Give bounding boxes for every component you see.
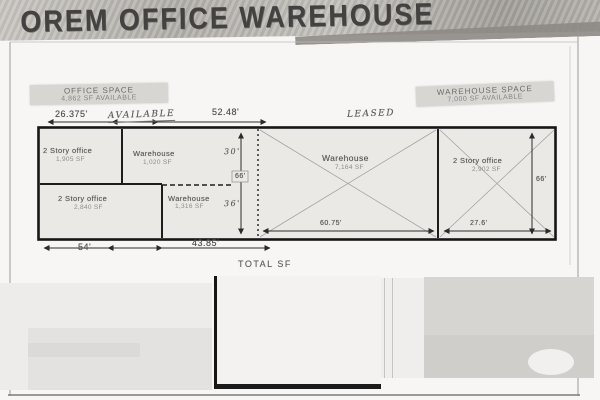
scan-artifact-overlay-2 xyxy=(28,343,140,357)
erased-logo-oval xyxy=(528,349,574,375)
dim-bottom-seg1: 54' xyxy=(78,242,91,252)
room-office-nw-area: 1,905 SF xyxy=(56,156,85,163)
dim-left-total: 66' xyxy=(235,173,246,180)
dim-top-seg1: 26.375' xyxy=(55,109,88,119)
room-warehouse-main-area: 7,164 SF xyxy=(335,164,364,171)
total-sf-label: TOTAL SF xyxy=(238,259,292,269)
room-office-sw-name: 2 Story office xyxy=(58,194,107,203)
interior-walls xyxy=(40,129,438,238)
room-warehouse-n-area: 1,020 SF xyxy=(143,159,172,166)
room-warehouse-s-name: Warehouse xyxy=(168,194,210,203)
dim-left-upper: 30' xyxy=(224,147,241,157)
room-office-sw-area: 2,840 SF xyxy=(74,204,103,211)
dim-main-width: 60.75' xyxy=(320,220,342,227)
dim-right-height: 66' xyxy=(536,176,547,183)
handwritten-leased: LEASED xyxy=(347,108,395,120)
room-warehouse-main-name: Warehouse xyxy=(322,153,369,163)
dim-top-seg2: 52.48' xyxy=(212,107,239,117)
scan-artifact-block-left xyxy=(0,283,212,390)
office-space-subtitle: 4,862 SF AVAILABLE xyxy=(34,94,164,103)
handwritten-available: AVAILABLE xyxy=(108,109,176,123)
scan-artifact-overlay-1 xyxy=(28,328,212,390)
scanned-flyer-page: OREM OFFICE WAREHOUSE xyxy=(0,0,600,400)
scan-artifact-box-middle xyxy=(214,276,381,389)
office-space-label: OFFICE SPACE 4,862 SF AVAILABLE xyxy=(30,83,168,105)
room-warehouse-s-area: 1,316 SF xyxy=(175,203,204,210)
room-office-e-name: 2 Story office xyxy=(453,156,502,165)
scan-line-2 xyxy=(392,278,393,378)
warehouse-space-label: WAREHOUSE SPACE 7,000 SF AVAILABLE xyxy=(416,81,555,107)
dimension-arrows xyxy=(44,122,551,248)
scan-line-1 xyxy=(384,278,385,378)
dim-right-width: 27.6' xyxy=(470,220,487,227)
room-office-e-area: 2,902 SF xyxy=(472,166,501,173)
scan-artifact-block-right xyxy=(424,277,594,378)
dim-left-lower: 36' xyxy=(224,199,241,209)
dim-bottom-seg2: 43.85' xyxy=(192,238,219,248)
header-banner: OREM OFFICE WAREHOUSE xyxy=(0,0,600,46)
room-office-nw-name: 2 Story office xyxy=(43,146,92,155)
scan-artifact-strip xyxy=(381,278,424,378)
room-warehouse-n-name: Warehouse xyxy=(133,149,175,158)
diagonal-cross-lines xyxy=(260,130,554,237)
